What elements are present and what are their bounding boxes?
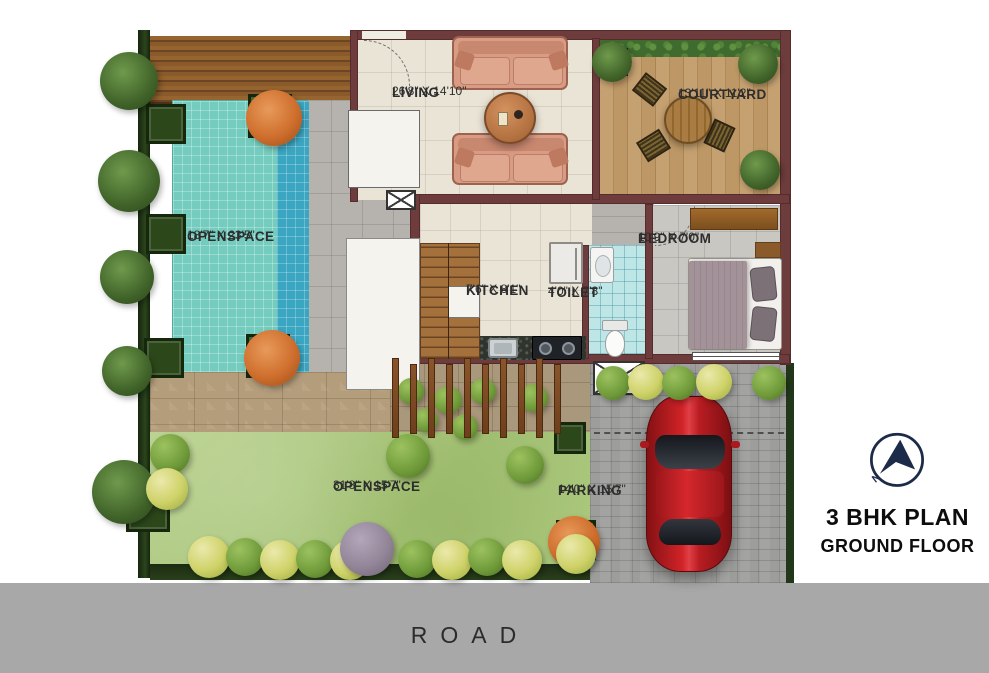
pergola-slat [446,364,453,434]
room-dims: 26'8" X 14'10" [392,84,467,100]
bush [596,366,630,400]
bush [502,540,542,580]
bush [468,538,506,576]
car-roof [656,471,724,517]
room-dims: 10'9" X 7'0" [638,230,699,246]
bed-pillow [749,266,777,302]
pergola-slat [464,358,471,438]
pergola-slat [410,364,417,434]
bush [432,540,472,580]
bush [246,90,302,146]
bed [688,258,782,350]
pergola-slat [392,358,399,438]
tree [738,44,778,84]
tree [740,150,780,190]
room-dims: 18'7" X 23'5" [187,228,255,244]
pergola-slat [428,358,435,438]
wall [350,30,358,114]
bush [662,366,696,400]
entry-porch [346,238,420,390]
pergola-slat [536,358,543,438]
bush [340,522,394,576]
legend: N 3 BHK PLAN GROUND FLOOR [810,430,985,575]
stove-burner [539,342,552,355]
refrigerator [549,242,583,284]
pergola-slat [554,364,561,434]
road: ROAD [0,583,989,673]
tree [98,150,160,212]
sofa-backrest [458,41,564,54]
washbasin [590,247,614,283]
bush [386,434,430,478]
coffee-table [484,92,536,144]
car-mirror [640,441,649,448]
tree [100,250,154,304]
toilet-bowl [605,330,625,357]
bush [398,540,436,578]
stove [532,336,582,360]
tree [102,346,152,396]
car-mirror [731,441,740,448]
plan-title: 3 BHK PLAN [810,504,985,531]
utility-shaft [348,110,420,188]
car-windshield [655,435,725,469]
hedge-right-boundary [786,363,794,583]
pergola-slat [500,358,507,438]
bush [260,540,300,580]
pergola-slat [482,364,489,434]
bush [244,330,300,386]
tree [592,42,632,82]
tree [100,52,158,110]
kitchen-sink [488,338,518,358]
table-item [514,110,523,119]
bedroom-window [692,352,780,361]
room-dims: 31'8" X 15'7" [333,478,401,494]
bush [696,364,732,400]
sofa [452,36,568,90]
stair-divider [448,243,449,359]
room-dims: 7'6" X 8'1" [466,282,520,298]
wall [410,194,790,204]
car-rear-window [659,519,721,545]
side-table [755,242,781,258]
stove-burner [562,342,575,355]
wall [350,30,790,40]
bush [752,366,786,400]
room-dims: 13'11" X 11'2" [678,86,751,102]
compass-north-letter: N [870,471,883,485]
sofa-pillow [548,147,569,168]
north-compass-icon: N [865,430,929,494]
bed-blanket [689,261,747,349]
bush [226,538,264,576]
floorplan-canvas: ROAD [0,0,989,673]
sofa-pillow [548,50,569,71]
bush [188,536,230,578]
pergola-slat [518,364,525,434]
wardrobe [690,208,778,230]
road-label: ROAD [360,622,580,649]
plan-subtitle: GROUND FLOOR [810,536,985,557]
bush [506,446,544,484]
car [646,396,732,572]
planter-box [146,104,186,144]
bush [556,534,596,574]
bush [146,468,188,510]
planter-box [146,214,186,254]
bush [296,540,334,578]
door-opening [362,31,406,39]
wall [645,204,653,359]
room-dims: 4'0" X 7'8" [548,284,602,300]
table-item [498,112,508,126]
threshold-step [386,190,416,210]
bush [628,364,664,400]
bed-pillow [749,306,777,342]
room-dims: 14'0" X 15'7" [558,482,626,498]
